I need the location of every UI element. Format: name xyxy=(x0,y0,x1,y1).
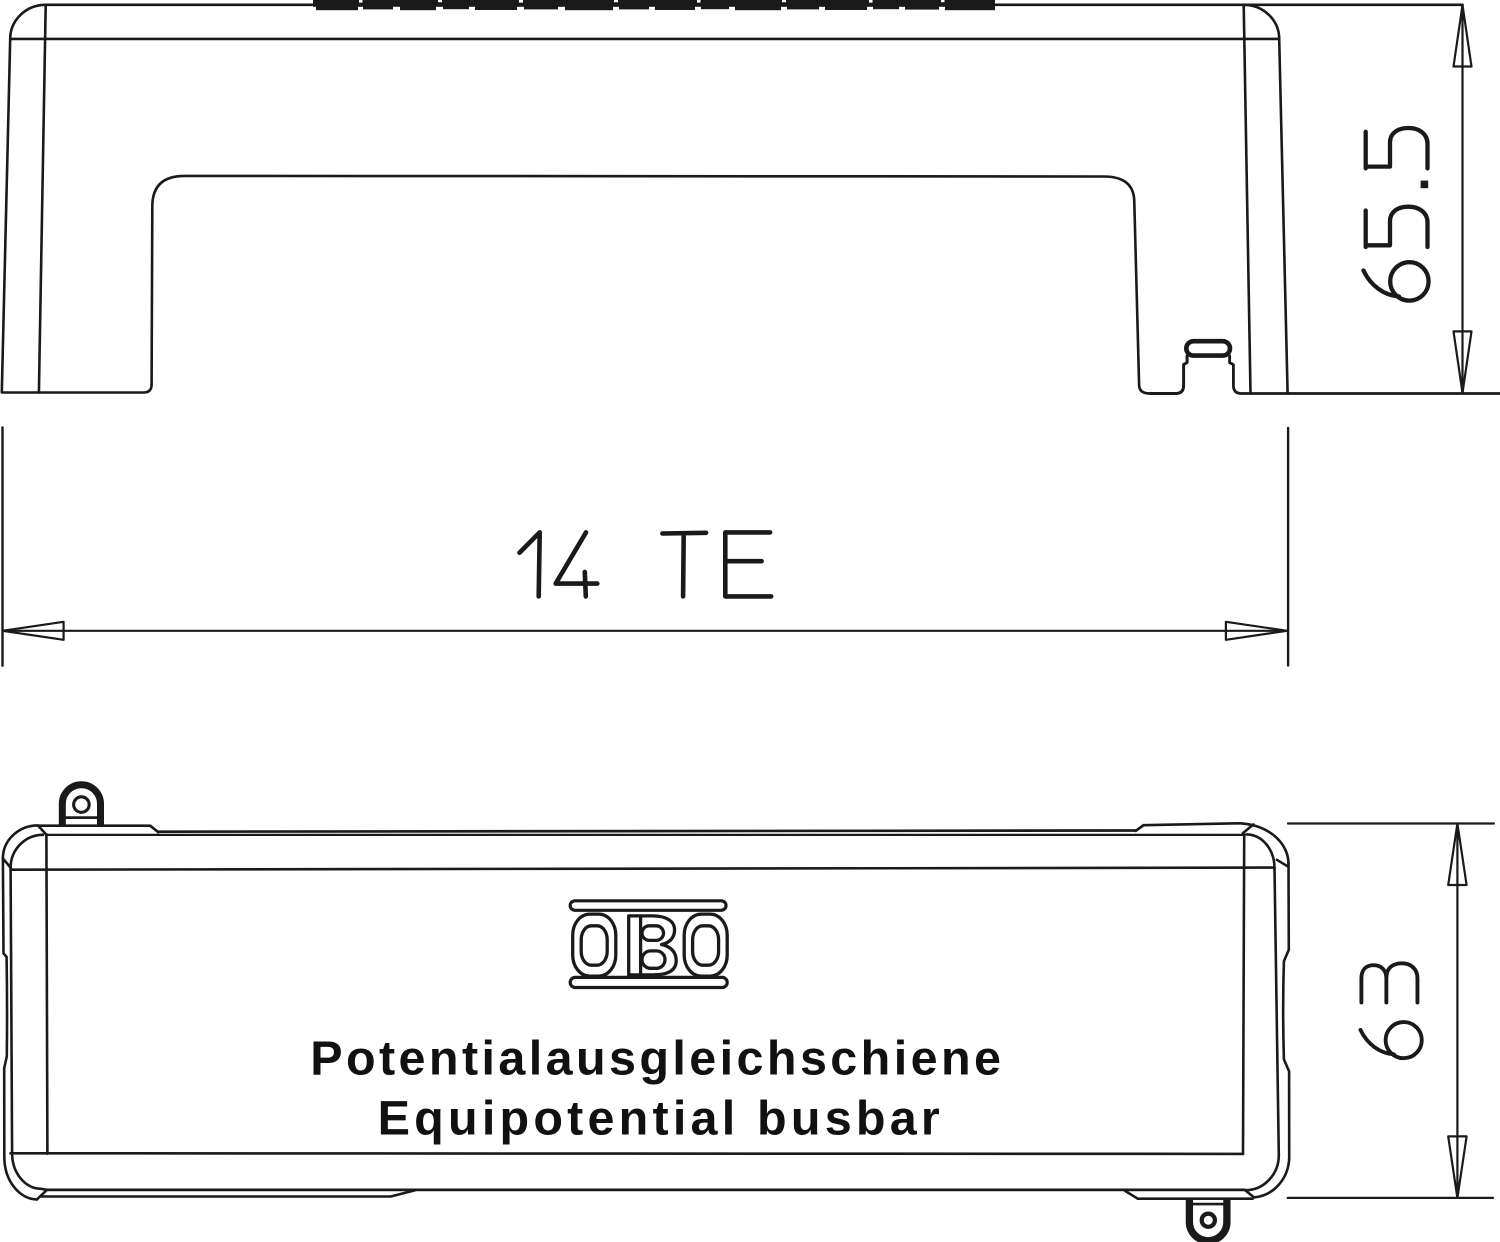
svg-text:Equipotential busbar: Equipotential busbar xyxy=(378,1091,944,1145)
svg-text:Potentialausgleichschiene: Potentialausgleichschiene xyxy=(310,1032,1004,1086)
